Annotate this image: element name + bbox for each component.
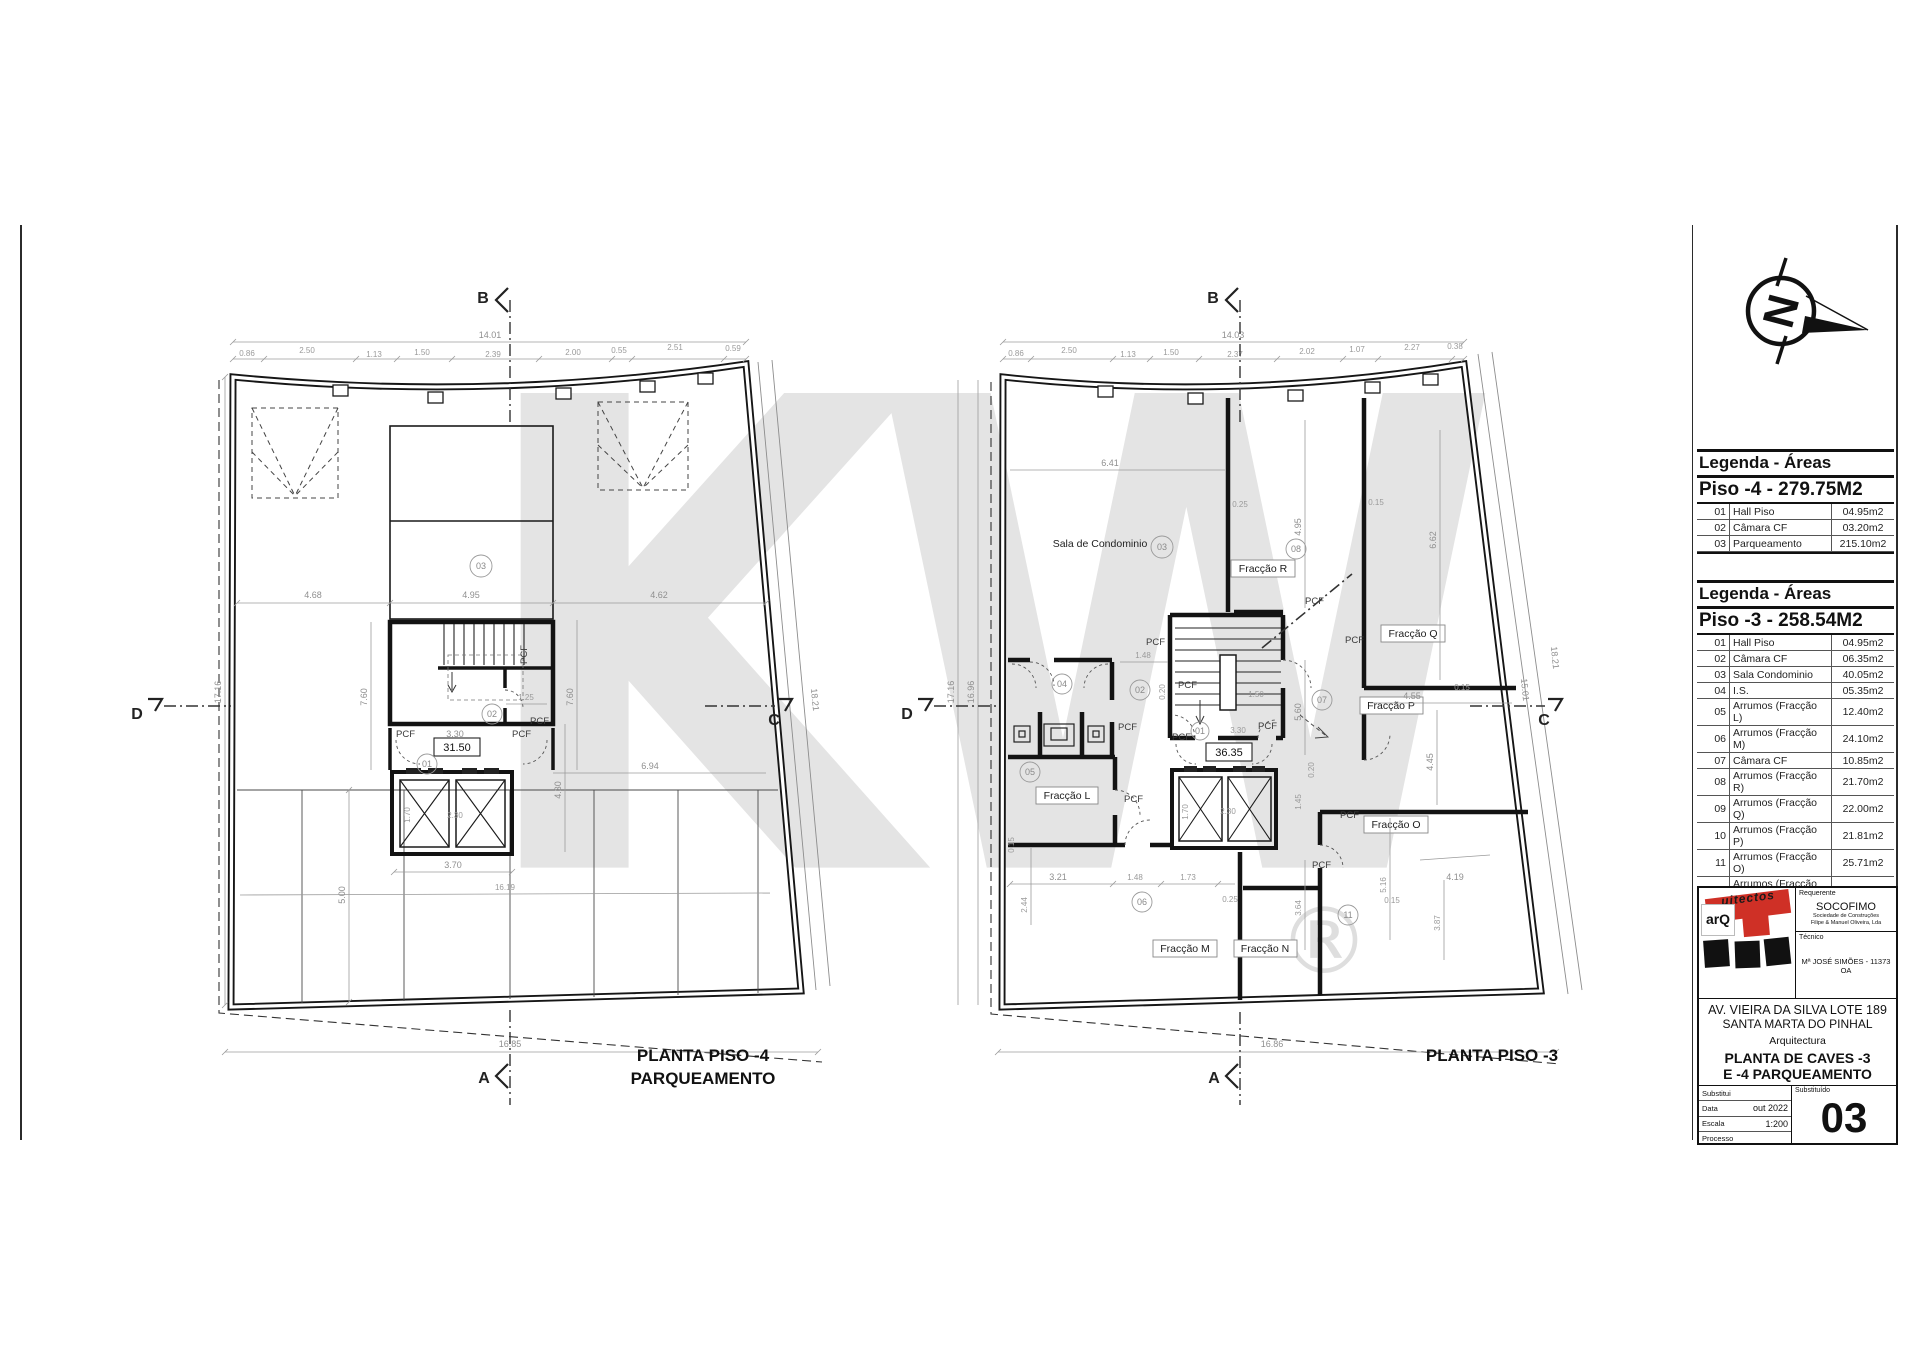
row-label: Arrumos (Fracção R) [1730, 769, 1832, 796]
address-line-2: SANTA MARTA DO PINHAL [1699, 1017, 1896, 1031]
dim: 0.15 [1454, 683, 1470, 692]
dim: 6.41 [1101, 458, 1119, 468]
dim: 1.13 [1120, 350, 1136, 359]
pcf: PCF [519, 645, 530, 664]
legend1-subtitle: Piso -4 - 279.75M2 [1697, 478, 1894, 504]
frac-m: Fracção M [1160, 943, 1210, 955]
dim: 1.13 [366, 350, 382, 359]
table-row: 06Arrumos (Fracção M)24.10m2 [1697, 726, 1894, 753]
pcf: PCF [396, 729, 415, 740]
dim: 1.45 [1294, 794, 1303, 810]
dim: 4.19 [1446, 872, 1464, 882]
dim: 4.45 [1425, 753, 1435, 771]
dim: 2.30 [447, 811, 463, 820]
requerente-label: Requerente [1796, 888, 1896, 899]
section-c: C [1538, 712, 1550, 729]
dim: 0.86 [1008, 349, 1024, 358]
logo-black-square [1764, 937, 1792, 966]
legend2-subtitle: Piso -3 - 258.54M2 [1697, 609, 1894, 635]
pcf: PCF [1340, 810, 1359, 821]
tecnico-name: Mª JOSÉ SIMÕES - 11373 OA [1796, 957, 1896, 975]
dim: 7.60 [565, 688, 575, 706]
legend2-table: 01Hall Piso04.95m2 02Câmara CF06.35m2 03… [1697, 635, 1894, 904]
dim: 1.48 [1135, 651, 1151, 660]
dim: 1.70 [403, 807, 412, 823]
section-d: D [901, 706, 913, 723]
room-03: 03 [476, 561, 486, 571]
table-row: 03 Parqueamento 215.10m2 [1697, 536, 1894, 552]
dim: 18.21 [1549, 646, 1561, 669]
site-boundary-dashed [219, 380, 822, 1062]
wc-fixtures [1012, 664, 1108, 746]
dim: 2.51 [667, 343, 683, 352]
pcf: PCF [1258, 721, 1277, 732]
dim: 15.01 [1519, 678, 1531, 701]
substitui-label: Substitui [1702, 1089, 1731, 1098]
row-num: 09 [1697, 796, 1730, 823]
room-03: 03 [1157, 542, 1167, 552]
row-num: 07 [1697, 753, 1730, 769]
dim: 0.20 [1307, 762, 1316, 778]
dim: 0.15 [1368, 498, 1384, 507]
dim: 1.50 [414, 348, 430, 357]
processo-label: Processo [1702, 1134, 1733, 1143]
dim: 0.86 [239, 349, 255, 358]
dim: 7.60 [359, 688, 369, 706]
pcf: PCF [1345, 635, 1364, 646]
row-num: 01 [1697, 504, 1730, 520]
row-area: 40.05m2 [1832, 667, 1895, 683]
logo-text-arq: arQ [1701, 904, 1735, 936]
dim: 14.03 [1222, 330, 1245, 340]
logo-black-square [1735, 941, 1761, 969]
plan4-title-1: PLANTA PISO -4 [637, 1046, 770, 1065]
row-label: Arrumos (Fracção O) [1730, 850, 1832, 877]
row-area: 05.35m2 [1832, 683, 1895, 699]
room-08: 08 [1291, 544, 1301, 554]
dim: 2.00 [565, 348, 581, 357]
stairs [1175, 574, 1352, 738]
table-row: 09Arrumos (Fracção Q)22.00m2 [1697, 796, 1894, 823]
requerente-name: SOCOFIMO [1796, 901, 1896, 913]
room-01: 01 [1195, 726, 1205, 736]
room-tags: 03 08 04 02 07 05 01 06 11 [1020, 536, 1358, 925]
dim: 1.48 [1127, 873, 1143, 882]
stair-core [390, 622, 553, 724]
dim: 4.62 [650, 590, 668, 600]
row-num: 03 [1697, 536, 1730, 552]
row-label: Câmara CF [1730, 520, 1832, 536]
room-02: 02 [487, 709, 497, 719]
sala-label: Sala de Condominio [1053, 538, 1148, 550]
row-label: Câmara CF [1730, 651, 1832, 667]
row-area: 21.81m2 [1832, 823, 1895, 850]
section-d: D [131, 706, 143, 723]
exterior-wall [231, 364, 801, 1007]
arquitectos-logo: uitectos arQ [1699, 888, 1796, 998]
pcf: PCF [1146, 637, 1165, 648]
dim: 2.02 [1299, 347, 1315, 356]
row-num: 04 [1697, 683, 1730, 699]
dim: 5.00 [337, 886, 347, 904]
row-num: 03 [1697, 667, 1730, 683]
plans-svg: 31.50 03 02 01 PCF PCF PCF PCF [0, 0, 1920, 1358]
dim: 0.20 [1158, 684, 1167, 700]
sheet-title-1: PLANTA DE CAVES -3 [1699, 1050, 1896, 1066]
section-b: B [477, 290, 489, 307]
room-07: 07 [1317, 695, 1327, 705]
room-11: 11 [1343, 910, 1352, 920]
row-area: 04.95m2 [1832, 504, 1895, 520]
requerente-sub1: Sociedade de Construções [1796, 913, 1896, 920]
ramp-funnel-left [252, 408, 338, 498]
level-value: 36.35 [1215, 747, 1243, 759]
dim: 17.16 [946, 681, 956, 704]
sheet-title-2: E -4 PARQUEAMENTO [1699, 1066, 1896, 1082]
escala-label: Escala [1702, 1119, 1725, 1128]
frac-q: Fracção Q [1388, 628, 1437, 640]
dim: 17.16 [213, 681, 223, 704]
dim: 16.19 [495, 883, 516, 892]
row-area: 22.00m2 [1832, 796, 1895, 823]
north-arrow-icon: N [1748, 258, 1868, 364]
pcf: PCF [1178, 680, 1197, 691]
north-letter: N [1754, 289, 1810, 332]
dim: 3.30 [1230, 726, 1246, 735]
dim: 0.38 [1447, 342, 1463, 351]
row-num: 02 [1697, 520, 1730, 536]
legend1-table: 01 Hall Piso 04.95m2 02 Câmara CF 03.20m… [1697, 504, 1894, 552]
dim: 18.21 [809, 688, 821, 711]
frac-p: Fracção P [1367, 700, 1415, 712]
interior-walls [1008, 398, 1528, 1000]
table-row: 02 Câmara CF 03.20m2 [1697, 520, 1894, 536]
row-label: Hall Piso [1730, 635, 1832, 651]
dim: 4.55 [1403, 691, 1421, 701]
dim: 3.64 [1294, 900, 1303, 916]
ramp-funnel-right [598, 402, 688, 490]
dim: 2.30 [1220, 807, 1236, 816]
logo-black-square [1703, 939, 1730, 968]
dim: 0.55 [611, 346, 627, 355]
dim: 0.59 [725, 344, 741, 353]
section-c: C [768, 712, 780, 729]
row-num: 05 [1697, 699, 1730, 726]
legend2-title: Legenda - Áreas [1697, 583, 1894, 606]
data-label: Data [1702, 1104, 1718, 1113]
legend-piso-4: Legenda - Áreas Piso -4 - 279.75M2 01 Ha… [1697, 449, 1894, 554]
dim: 1.73 [1180, 873, 1196, 882]
dim: 3.30 [446, 729, 464, 739]
tecnico-label: Técnico [1796, 931, 1896, 943]
table-row: 05Arrumos (Fracção L)12.40m2 [1697, 699, 1894, 726]
row-area: 24.10m2 [1832, 726, 1895, 753]
discipline: Arquitectura [1699, 1035, 1896, 1047]
dim: 2.50 [299, 346, 315, 355]
section-a: A [478, 1070, 490, 1087]
dim: 0.25 [1232, 500, 1248, 509]
plan-piso-3: 36.35 Sala de Condominio Fracção R Fracç… [901, 288, 1582, 1105]
row-area: 03.20m2 [1832, 520, 1895, 536]
room-04: 04 [1057, 679, 1067, 689]
dim: 4.68 [304, 590, 322, 600]
frac-o: Fracção O [1371, 819, 1420, 831]
dim: 2.50 [1061, 346, 1077, 355]
table-row: 10Arrumos (Fracção P)21.81m2 [1697, 823, 1894, 850]
pcf: PCF [512, 729, 531, 740]
frac-n: Fracção N [1241, 943, 1289, 955]
dim: 2.39 [485, 350, 501, 359]
room-01: 01 [422, 759, 432, 769]
legend-piso-3: Legenda - Áreas Piso -3 - 258.54M2 01Hal… [1697, 580, 1894, 906]
plan-piso-4: 31.50 03 02 01 PCF PCF PCF PCF [131, 288, 830, 1105]
room-02: 02 [1135, 685, 1145, 695]
exterior-wall-core [231, 364, 801, 1007]
dim: 3.21 [1049, 872, 1067, 882]
requerente-sub2: Filipe & Manuel Oliveira, Lda [1796, 920, 1896, 927]
row-label: Arrumos (Fracção Q) [1730, 796, 1832, 823]
data-value: out 2022 [1753, 1103, 1788, 1113]
substituido-label: Substituído [1795, 1087, 1830, 1094]
dim: 6.94 [641, 761, 659, 771]
plan3-title: PLANTA PISO -3 [1426, 1046, 1558, 1065]
legend1-title: Legenda - Áreas [1697, 452, 1894, 475]
section-b: B [1207, 290, 1219, 307]
table-row: 03Sala Condominio40.05m2 [1697, 667, 1894, 683]
dim: 2.27 [1404, 343, 1420, 352]
row-area: 25.71m2 [1832, 850, 1895, 877]
frac-r: Fracção R [1239, 563, 1288, 575]
dim: 4.95 [462, 590, 480, 600]
pcf: PCF [530, 716, 549, 727]
dim: 3.87 [1433, 915, 1442, 931]
row-label: Arrumos (Fracção M) [1730, 726, 1832, 753]
pcf: PCF [1172, 732, 1191, 743]
title-block: uitectos arQ Requerente SOCOFIMO Socieda… [1697, 886, 1898, 1145]
dim: 14.01 [479, 330, 502, 340]
logo-red-square [1742, 913, 1770, 937]
row-num: 10 [1697, 823, 1730, 850]
section-a: A [1208, 1070, 1220, 1087]
row-num: 06 [1697, 726, 1730, 753]
row-label: Hall Piso [1730, 504, 1832, 520]
level-value: 31.50 [443, 742, 471, 754]
row-num: 02 [1697, 651, 1730, 667]
row-label: Arrumos (Fracção P) [1730, 823, 1832, 850]
parking-grid [237, 790, 778, 1003]
door-arcs [1030, 660, 1390, 868]
pcf: PCF [1305, 596, 1324, 607]
dim: 16.96 [966, 681, 976, 704]
table-row: 07Câmara CF10.85m2 [1697, 753, 1894, 769]
sheet-number: 03 [1792, 1094, 1896, 1142]
row-label: Sala Condominio [1730, 667, 1832, 683]
table-row: 04I.S.05.35m2 [1697, 683, 1894, 699]
row-num: 11 [1697, 850, 1730, 877]
row-area: 04.95m2 [1832, 635, 1895, 651]
row-num: 01 [1697, 635, 1730, 651]
row-area: 21.70m2 [1832, 769, 1895, 796]
table-row: 11Arrumos (Fracção O)25.71m2 [1697, 850, 1894, 877]
table-row: 08Arrumos (Fracção R)21.70m2 [1697, 769, 1894, 796]
row-label: Câmara CF [1730, 753, 1832, 769]
room-06: 06 [1137, 897, 1147, 907]
dim: 1.50 [1248, 690, 1264, 699]
pcf: PCF [1118, 722, 1137, 733]
row-label: Parqueamento [1730, 536, 1832, 552]
dim: 1.50 [1163, 348, 1179, 357]
pcf: PCF [1124, 794, 1143, 805]
dim: 0.25 [1222, 895, 1238, 904]
row-area: 12.40m2 [1832, 699, 1895, 726]
row-area: 10.85m2 [1832, 753, 1895, 769]
dim: 16.86 [1261, 1039, 1284, 1049]
row-label: I.S. [1730, 683, 1832, 699]
dim: 1.25 [518, 693, 534, 702]
room-05: 05 [1025, 767, 1035, 777]
dim: 2.37 [1227, 350, 1243, 359]
dim-seg-labels: 0.86 2.50 1.13 1.50 2.37 2.02 1.07 2.27 … [1008, 342, 1463, 359]
dim: 0.15 [1007, 837, 1016, 853]
pcf: PCF [1312, 860, 1331, 871]
dim: 5.16 [1379, 877, 1388, 893]
dim: 1.70 [1181, 804, 1190, 820]
table-row: 02Câmara CF06.35m2 [1697, 651, 1894, 667]
row-num: 08 [1697, 769, 1730, 796]
dim: 4.95 [1293, 518, 1303, 536]
dim: 3.70 [444, 860, 462, 870]
frac-l: Fracção L [1044, 790, 1091, 802]
dim: 6.62 [1428, 531, 1438, 549]
plan4-title-2: PARQUEAMENTO [631, 1069, 776, 1088]
escala-value: 1:200 [1765, 1119, 1788, 1129]
dim-seg-labels: 0.86 2.50 1.13 1.50 2.39 2.00 0.55 2.51 … [239, 343, 741, 359]
table-row: 01 Hall Piso 04.95m2 [1697, 504, 1894, 520]
row-label: Arrumos (Fracção L) [1730, 699, 1832, 726]
dim: 4.30 [553, 781, 563, 799]
dim: 2.44 [1020, 897, 1029, 913]
table-row: 01Hall Piso04.95m2 [1697, 635, 1894, 651]
row-area: 06.35m2 [1832, 651, 1895, 667]
drawing-sheet: KW ® [0, 0, 1920, 1358]
dim: 0.15 [1384, 896, 1400, 905]
dim: 5.60 [1293, 703, 1303, 721]
dim: 1.07 [1349, 345, 1365, 354]
address-line-1: AV. VIEIRA DA SILVA LOTE 189 [1699, 1003, 1896, 1017]
row-area: 215.10m2 [1832, 536, 1895, 552]
